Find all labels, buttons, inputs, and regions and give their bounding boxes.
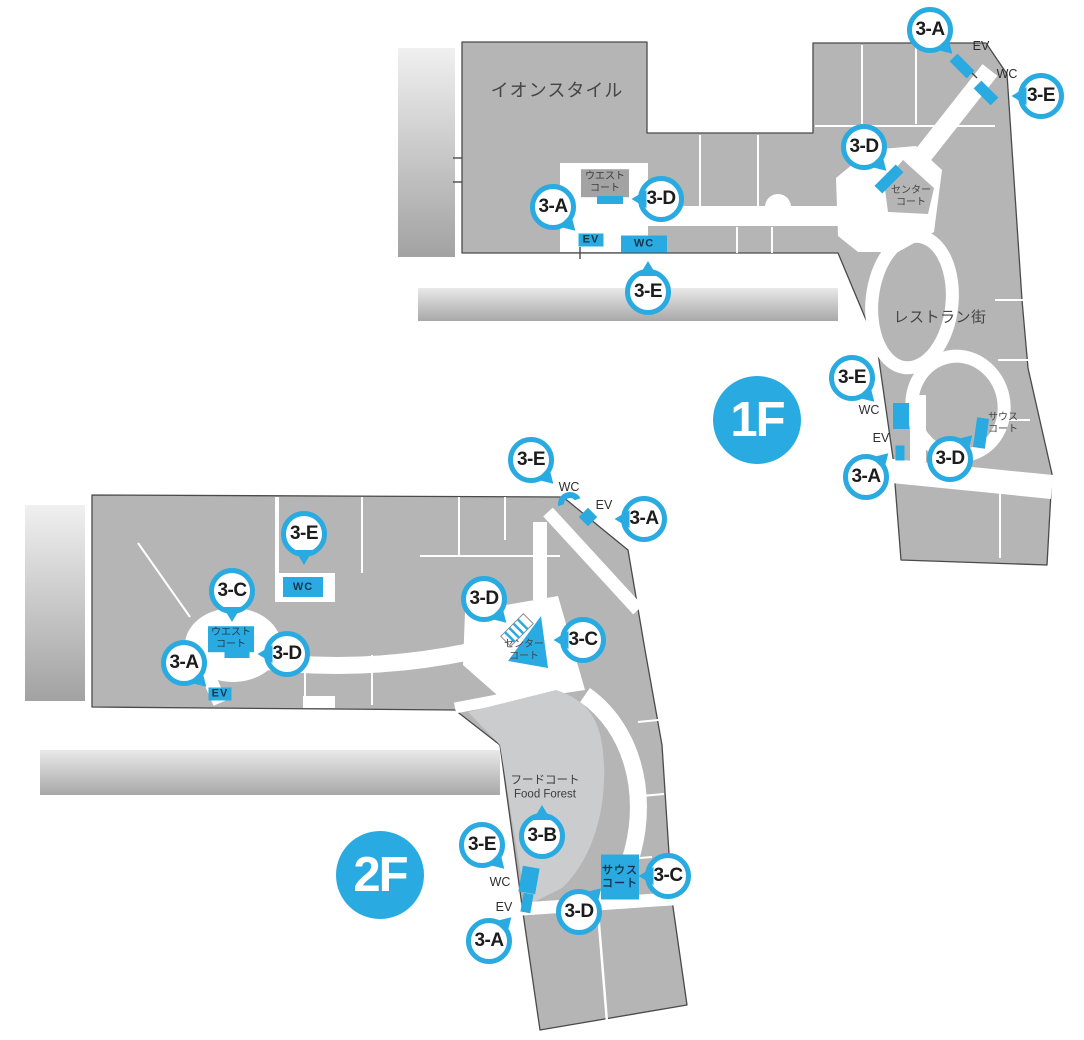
location-marker[interactable]: 3-C [645, 853, 691, 899]
balloon-label: 3-D [469, 588, 498, 610]
location-marker[interactable]: 3-A [621, 496, 667, 542]
floor-badge-1f: 1F [713, 376, 801, 464]
balloon-label: 3-E [290, 523, 318, 545]
floor-guide-map: 3-A 3-E 3-D 3-A 3-D 3-E 3-E 3-A 3-D EVWC… [0, 0, 1084, 1040]
ev-label: EV [496, 900, 513, 914]
location-marker[interactable]: 3-E [459, 822, 505, 868]
balloon-tail [223, 607, 241, 622]
wc-label: WC [559, 480, 580, 494]
center-court-label: センター コート [504, 639, 544, 663]
ev-sign: EV [209, 688, 232, 701]
balloon-label: 3-E [517, 449, 545, 471]
wc-sign: WC [283, 577, 323, 597]
location-marker[interactable]: 3-C [560, 617, 606, 663]
balloon-tail [554, 631, 569, 649]
location-marker[interactable]: 3-D [461, 576, 507, 622]
balloon-label: 3-C [217, 580, 246, 602]
balloon-label: 3-C [653, 865, 682, 887]
balloon-tail [615, 510, 630, 528]
west-court-label: ウエスト コート [208, 626, 254, 652]
balloon-label: 3-A [474, 930, 503, 952]
location-marker[interactable]: 3-E [281, 511, 327, 557]
balloon-tail [639, 867, 654, 885]
balloon-label: 3-A [629, 508, 658, 530]
location-marker[interactable]: 3-A [161, 640, 207, 686]
balloon-tail [295, 550, 313, 565]
balloon-tail [533, 805, 551, 820]
balloon-label: 3-D [564, 901, 593, 923]
ev-label: EV [596, 498, 613, 512]
south-court-sign: サウス コート [601, 855, 639, 900]
floor-badge-2f: 2F [336, 831, 424, 919]
balloon-tail [258, 645, 273, 663]
location-marker[interactable]: 3-A [466, 918, 512, 964]
location-marker[interactable]: 3-B [519, 813, 565, 859]
elevator-mark [579, 508, 597, 526]
location-marker[interactable]: 3-C [209, 568, 255, 614]
balloon-label: 3-C [568, 629, 597, 651]
floor-2f-overlay: 3-E 3-A 3-E 3-C 3-D 3-A 3-D 3-C 3-B 3-E … [0, 0, 1084, 1040]
location-marker[interactable]: 3-D [264, 631, 310, 677]
elevator-mark [520, 893, 533, 913]
escalator-mark [225, 650, 250, 658]
location-marker[interactable]: 3-D [556, 889, 602, 935]
balloon-label: 3-B [527, 825, 556, 847]
balloon-label: 3-E [468, 834, 496, 856]
balloon-label: 3-A [169, 652, 198, 674]
location-marker[interactable]: 3-E [508, 437, 554, 483]
balloon-label: 3-D [272, 643, 301, 665]
food-court-label: フードコート Food Forest [511, 774, 580, 801]
wc-label: WC [490, 875, 511, 889]
toilet-mark [518, 866, 539, 895]
